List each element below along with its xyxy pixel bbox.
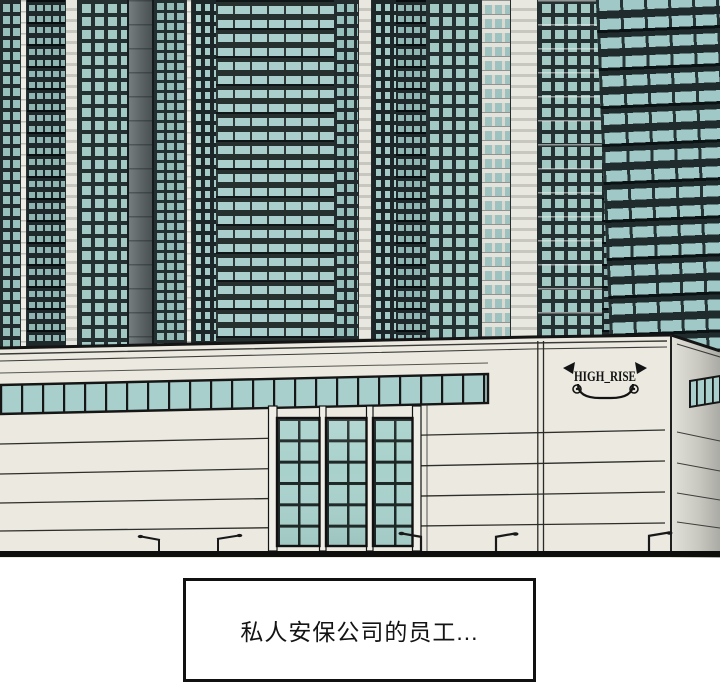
entrance-glass	[269, 406, 422, 551]
sign-text: HIGH_RISE	[574, 369, 636, 385]
clerestory-band-right	[690, 376, 720, 407]
glass-panel	[277, 418, 320, 546]
comic-panel: HIGH_RISE	[0, 0, 720, 700]
caption-text: 私人安保公司的员工...	[240, 613, 478, 647]
glass-panel	[326, 418, 367, 546]
caption-box: 私人安保公司的员工...	[183, 578, 536, 682]
ground-line	[0, 551, 720, 557]
glass-panel	[373, 418, 413, 546]
